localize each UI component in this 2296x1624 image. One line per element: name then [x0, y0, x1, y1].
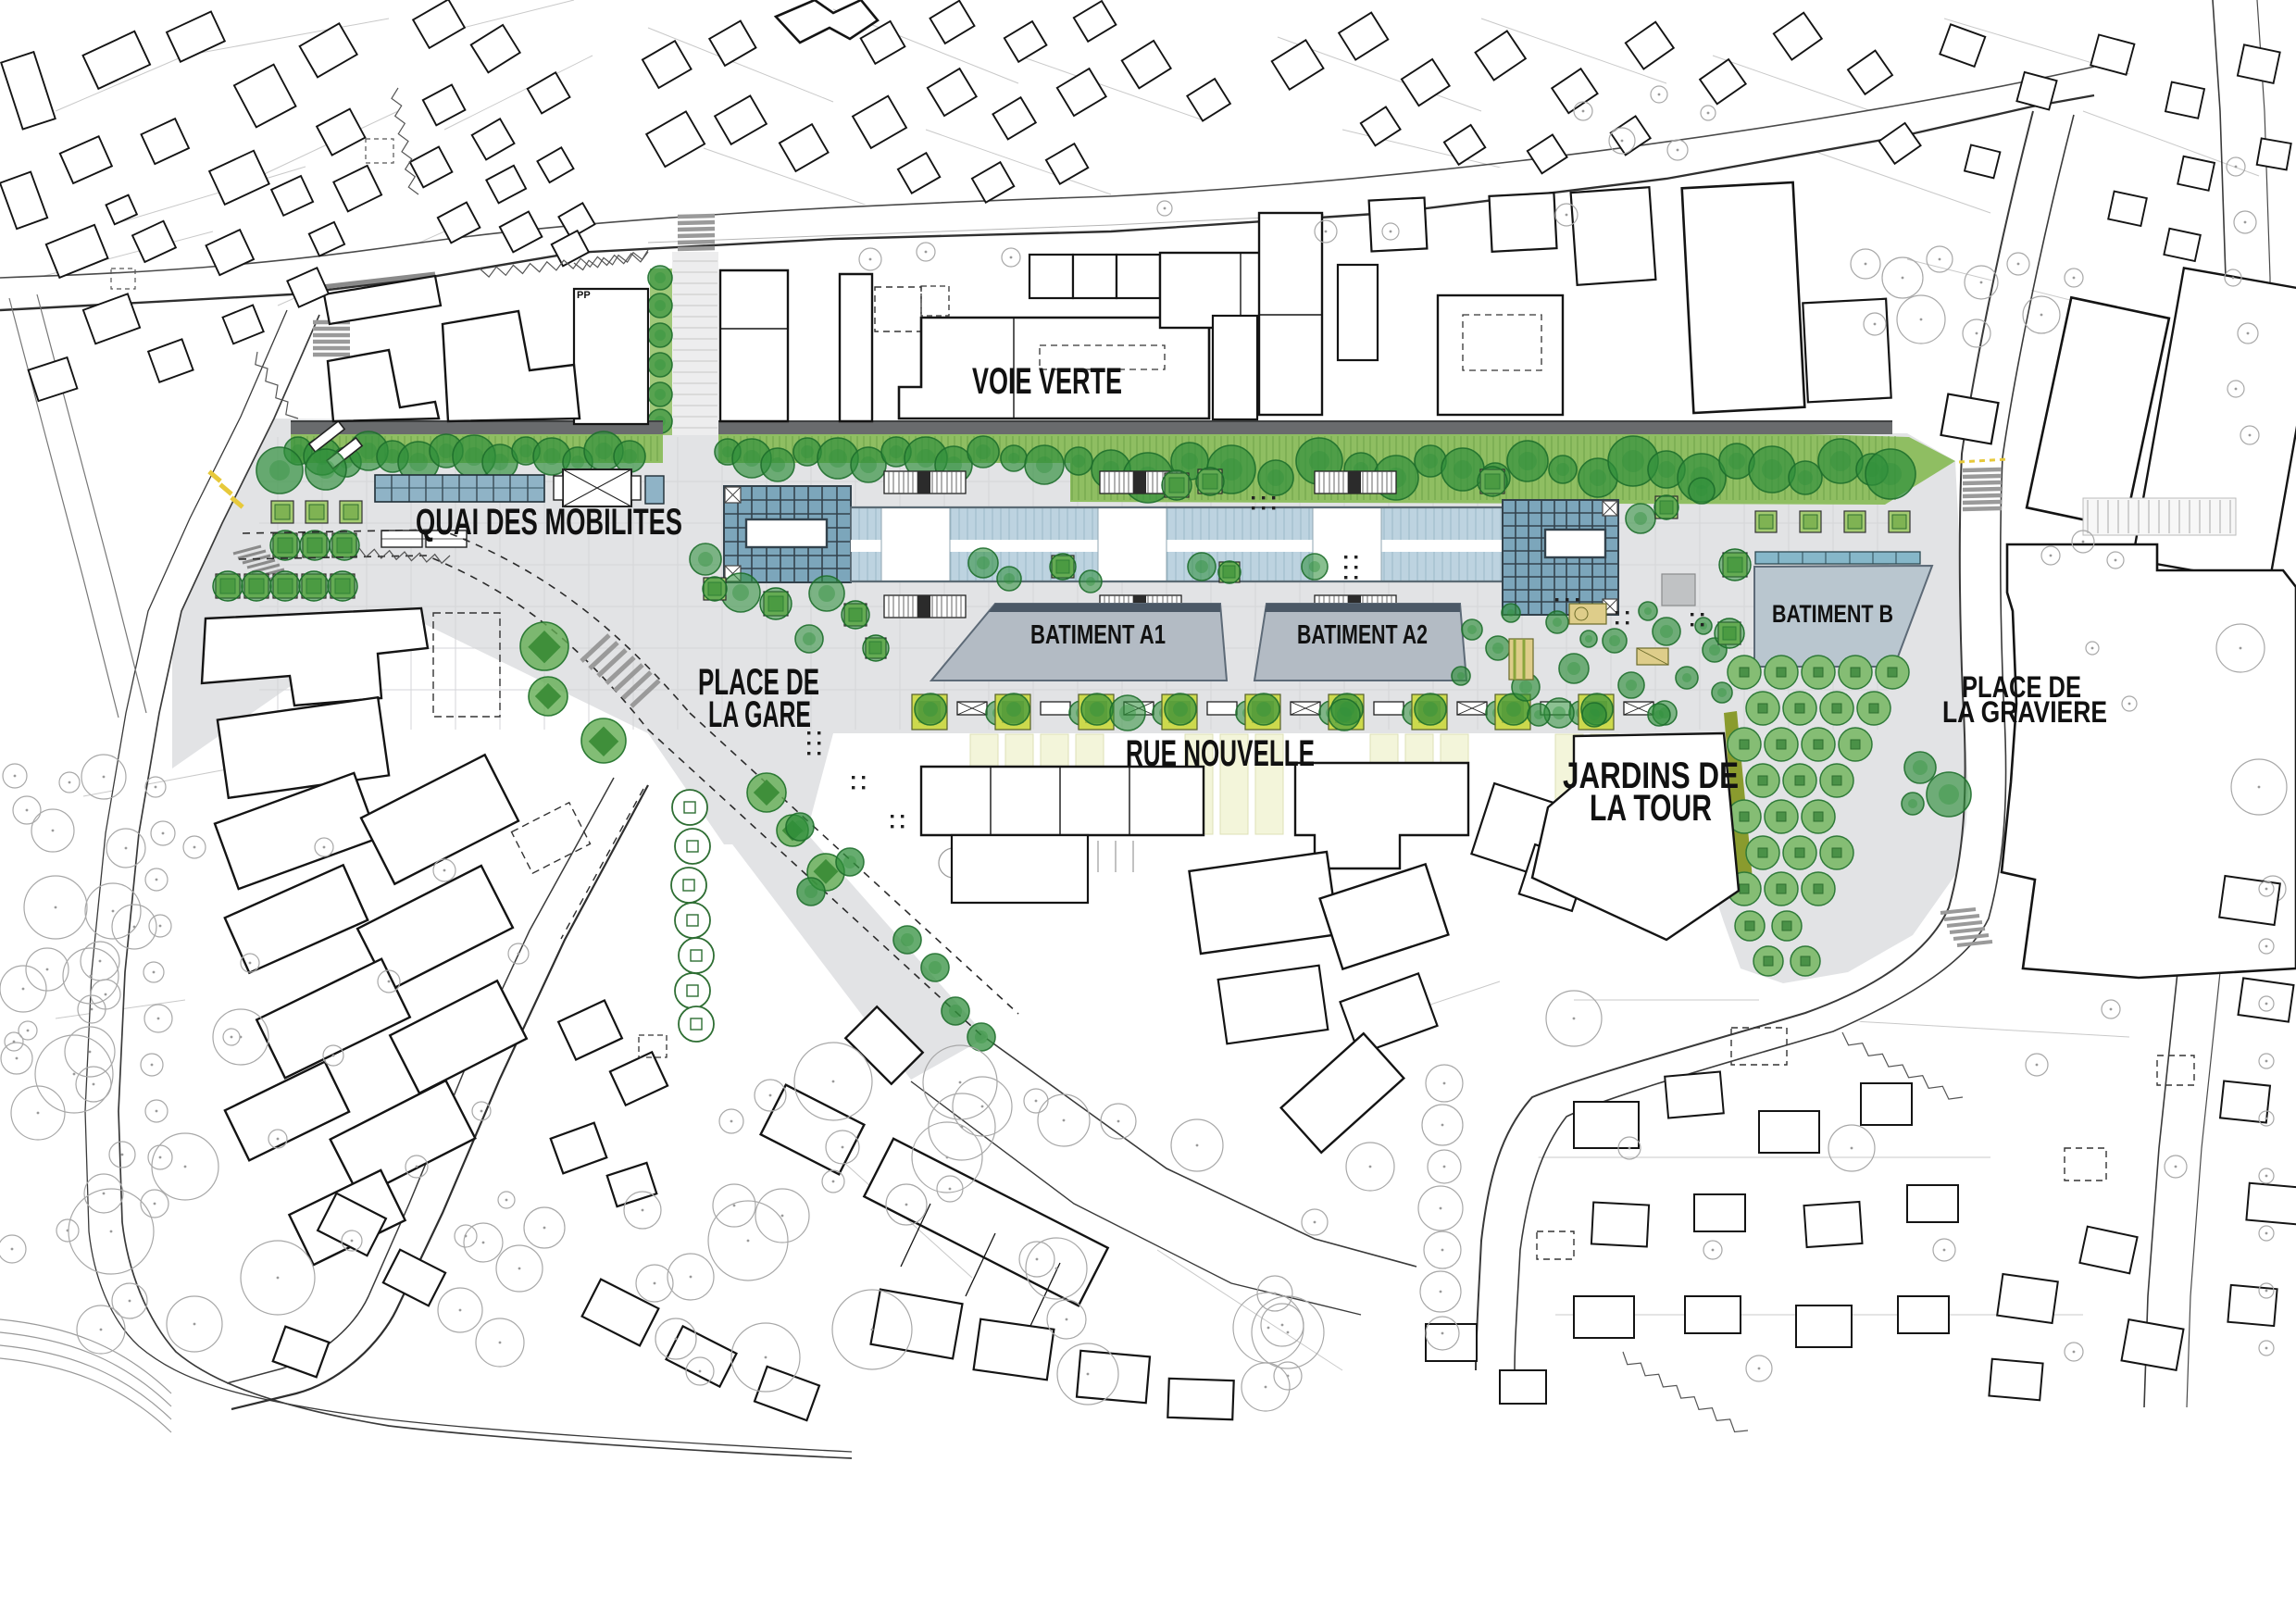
- svg-text:LA GARE: LA GARE: [708, 694, 811, 735]
- svg-text:BATIMENT A1: BATIMENT A1: [1030, 620, 1166, 650]
- svg-text:BATIMENT B: BATIMENT B: [1772, 600, 1893, 628]
- svg-text:LA GRAVIERE: LA GRAVIERE: [1942, 695, 2107, 729]
- svg-text:RUE NOUVELLE: RUE NOUVELLE: [1126, 733, 1315, 774]
- svg-text:QUAI DES MOBILITES: QUAI DES MOBILITES: [416, 502, 682, 543]
- svg-text:BATIMENT A2: BATIMENT A2: [1297, 620, 1428, 650]
- svg-text:VOIE VERTE: VOIE VERTE: [972, 361, 1122, 402]
- svg-text:PP: PP: [577, 290, 591, 301]
- svg-text:LA TOUR: LA TOUR: [1590, 788, 1712, 829]
